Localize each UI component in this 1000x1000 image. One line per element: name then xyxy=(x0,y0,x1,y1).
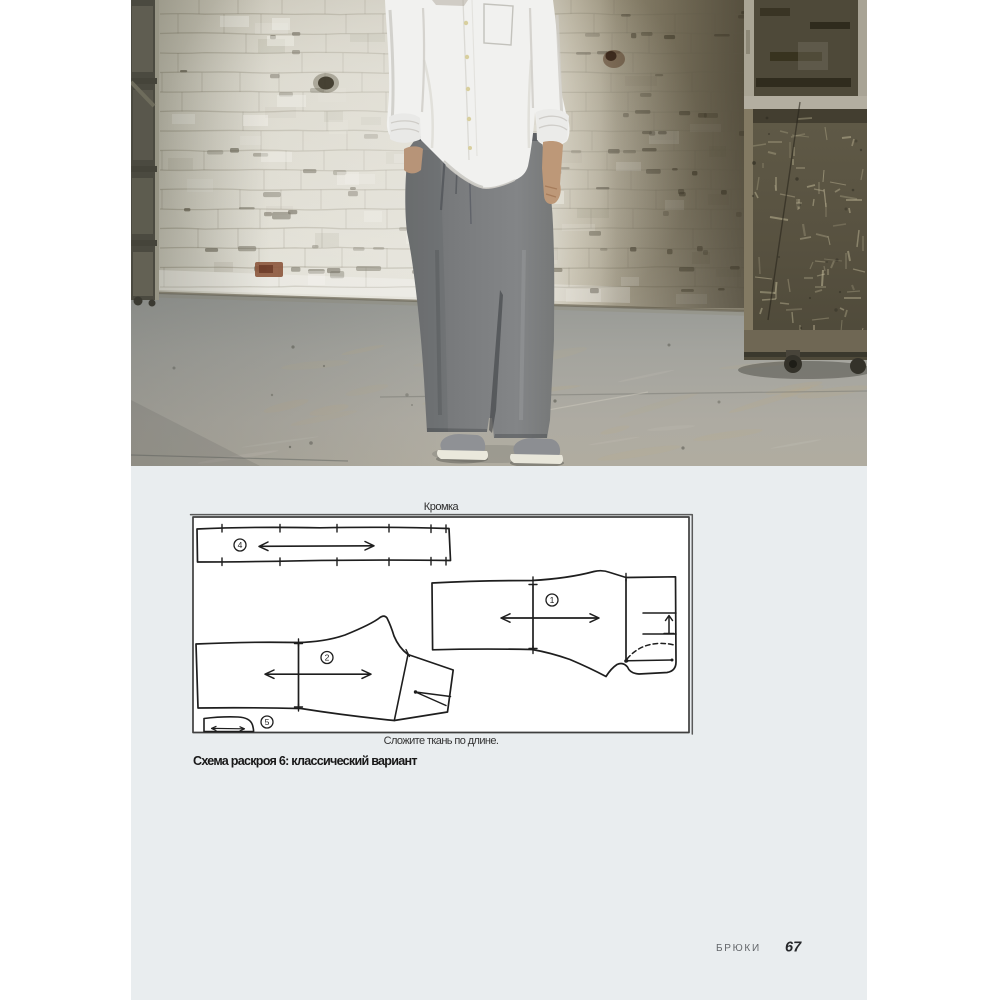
svg-text:4: 4 xyxy=(238,540,243,550)
svg-text:1: 1 xyxy=(550,595,555,605)
svg-text:БРЮКИ: БРЮКИ xyxy=(716,943,761,954)
svg-text:Сложите ткань по длине.: Сложите ткань по длине. xyxy=(384,735,499,747)
svg-text:Схема раскроя 6: классический: Схема раскроя 6: классический вариант xyxy=(193,754,417,768)
svg-text:Кромка: Кромка xyxy=(424,501,460,513)
svg-text:5: 5 xyxy=(265,717,270,727)
svg-text:67: 67 xyxy=(785,940,802,956)
svg-text:2: 2 xyxy=(325,653,330,663)
